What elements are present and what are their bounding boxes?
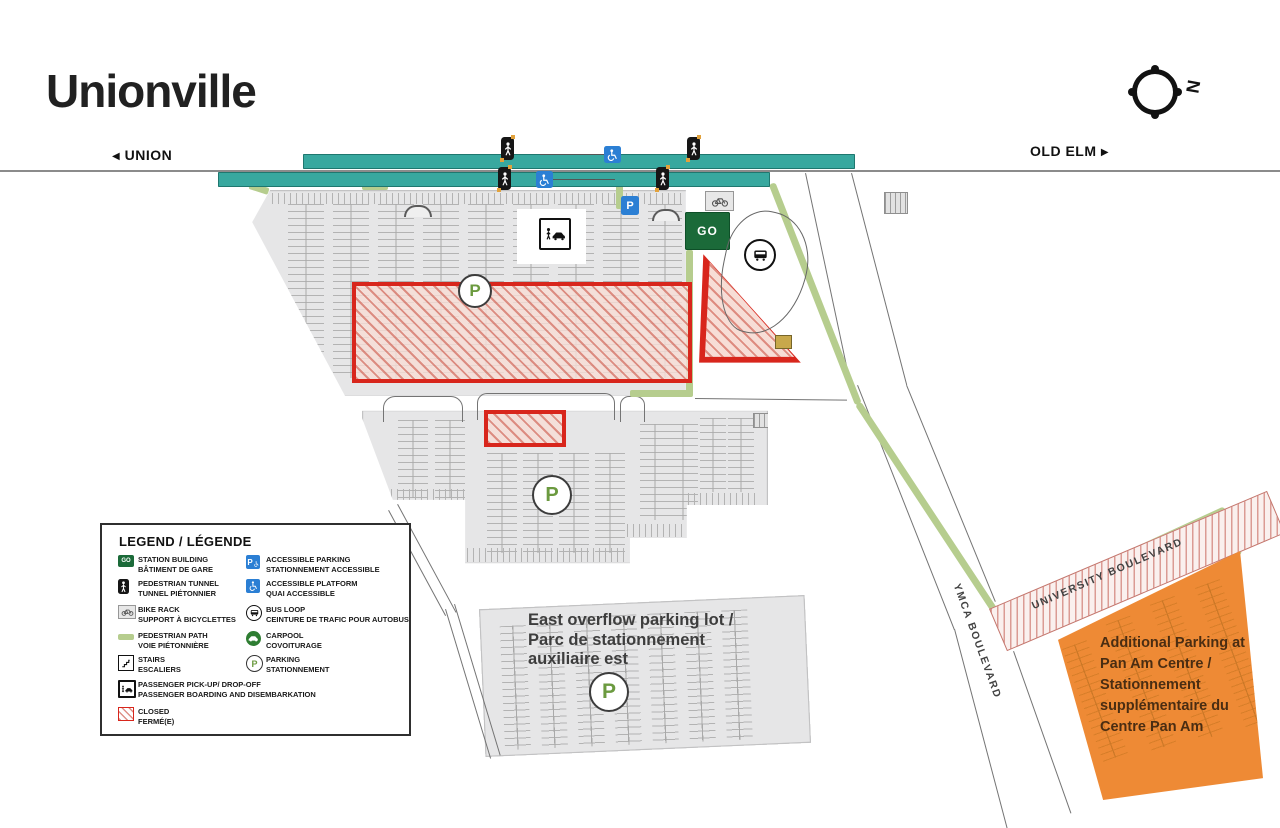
- rail-platform-south: [218, 172, 770, 187]
- road-edge: [695, 398, 847, 401]
- left-arrow-icon: ◀: [112, 151, 120, 162]
- accessible-parking-sign: P: [621, 196, 639, 215]
- legend-item-accessible-parking: P ACCESSIBLE PARKINGSTATIONNEMENT ACCESS…: [246, 555, 380, 574]
- accessible-platform-icon: [536, 171, 553, 188]
- legend-title: LEGEND / LÉGENDE: [119, 534, 252, 549]
- nav-old-elm-label: OLD ELM: [1030, 143, 1097, 159]
- pedestrian-tunnel-icon: [498, 167, 511, 190]
- station-map-page: Additional Parking at Pan Am Centre / St…: [0, 0, 1280, 828]
- pan-am-parking-label: Additional Parking at Pan Am Centre / St…: [1100, 633, 1270, 738]
- bus-loop-icon: [246, 605, 262, 621]
- pedestrian-tunnel-icon: [656, 167, 669, 190]
- parking-aisle: [500, 625, 531, 750]
- legend-item-stairs: STAIRSESCALIERS: [118, 655, 181, 674]
- driveway-curb: [620, 396, 645, 422]
- parking-aisle: [595, 453, 625, 553]
- parking-aisle: [700, 418, 726, 492]
- pedestrian-tunnel-icon: [118, 579, 129, 594]
- legend-item-parking: P PARKINGSTATIONNEMENT: [246, 655, 329, 674]
- bike-rack-icon: [705, 191, 734, 211]
- closed-icon: [118, 707, 134, 721]
- bike-rack-icon: [118, 605, 136, 619]
- nav-union: ◀ UNION: [112, 147, 172, 163]
- parking-aisle: [728, 418, 754, 492]
- parking-aisle: [288, 204, 324, 378]
- north-label: N: [1181, 78, 1204, 94]
- parking-icon-east: P: [589, 672, 629, 712]
- pedestrian-path-icon: [118, 634, 134, 640]
- bike-shelter-icon: [884, 192, 908, 214]
- platform-guide-line: [540, 154, 606, 155]
- parking-letter: P: [469, 281, 480, 301]
- parking-icon-north: P: [458, 274, 492, 308]
- parking-aisle: [668, 424, 698, 520]
- parking-aisle: [398, 420, 428, 498]
- accessible-parking-letter: P: [626, 200, 633, 212]
- pedestrian-path: [630, 390, 693, 397]
- right-arrow-icon: ▶: [1101, 147, 1109, 158]
- legend-item-closed: CLOSEDFERMÉ(E): [118, 707, 174, 726]
- platform-guide-line: [553, 179, 615, 180]
- shelter-icon: [688, 525, 703, 539]
- parking-ticks: [688, 493, 760, 505]
- parking-letter: P: [602, 680, 616, 704]
- legend-item-bike-rack: BIKE RACKSUPPORT À BICYCLETTES: [118, 605, 236, 624]
- east-overflow-label: East overflow parking lot / Parc de stat…: [528, 611, 733, 670]
- pedestrian-tunnel-icon: [501, 137, 514, 160]
- parking-icon: P: [246, 655, 263, 672]
- parking-aisle: [435, 420, 465, 498]
- parking-ticks: [385, 489, 465, 501]
- passenger-pickup-dropoff-icon: [539, 218, 571, 250]
- stairs-icon: [118, 655, 134, 671]
- pedestrian-tunnel-icon: [687, 137, 700, 160]
- accessible-parking-icon: P: [246, 555, 260, 569]
- page-title: Unionville: [46, 64, 256, 118]
- parking-aisle: [640, 424, 670, 520]
- station-building: GO: [685, 212, 730, 250]
- driveway-curb: [383, 396, 463, 422]
- legend-item-accessible-platform: ACCESSIBLE PLATFORMQUAI ACCESSIBLE: [246, 579, 358, 598]
- closed-area-small: [484, 410, 566, 447]
- parking-icon-south: P: [532, 475, 572, 515]
- station-building-icon: GO: [118, 555, 134, 567]
- legend-item-station-building: GO STATION BUILDINGBÂTIMENT DE GARE: [118, 555, 213, 574]
- parking-ticks: [627, 524, 693, 537]
- utility-box-icon: [775, 335, 792, 349]
- legend-item-pedestrian-path: PEDESTRIAN PATHVOIE PIÉTONNIÈRE: [118, 631, 209, 650]
- legend-box: LEGEND / LÉGENDE GO STATION BUILDINGBÂTI…: [100, 523, 411, 736]
- accessible-platform-icon: [246, 579, 260, 593]
- parking-aisle: [487, 453, 517, 553]
- go-logo: GO: [697, 224, 718, 238]
- road-edge: [1013, 651, 1071, 813]
- nav-union-label: UNION: [125, 147, 173, 163]
- legend-item-carpool: CARPOOLCOVOITURAGE: [246, 631, 322, 650]
- legend-item-pickup-dropoff: PASSENGER PICK-UP/ DROP-OFFPASSENGER BOA…: [118, 680, 316, 699]
- closed-area-main: [352, 282, 692, 383]
- accessible-platform-icon: [604, 146, 621, 163]
- passenger-pickup-dropoff-icon: [118, 680, 136, 698]
- bus-loop-icon: [744, 239, 776, 271]
- compass-icon: [1126, 63, 1184, 121]
- rail-platform-north: [303, 154, 855, 169]
- carpool-icon: [246, 631, 261, 646]
- nav-old-elm: OLD ELM ▶: [1030, 143, 1109, 159]
- parking-ticks: [467, 548, 627, 562]
- legend-item-pedestrian-tunnel: PEDESTRIAN TUNNELTUNNEL PIÉTONNIER: [118, 579, 219, 598]
- shelter-icon: [753, 413, 769, 428]
- pedestrian-path: [855, 402, 1001, 619]
- parking-letter: P: [545, 484, 558, 507]
- ymca-boulevard-label: YMCA BOULEVARD: [951, 582, 1004, 700]
- legend-item-bus-loop: BUS LOOPCEINTURE DE TRAFIC POUR AUTOBUS: [246, 605, 409, 624]
